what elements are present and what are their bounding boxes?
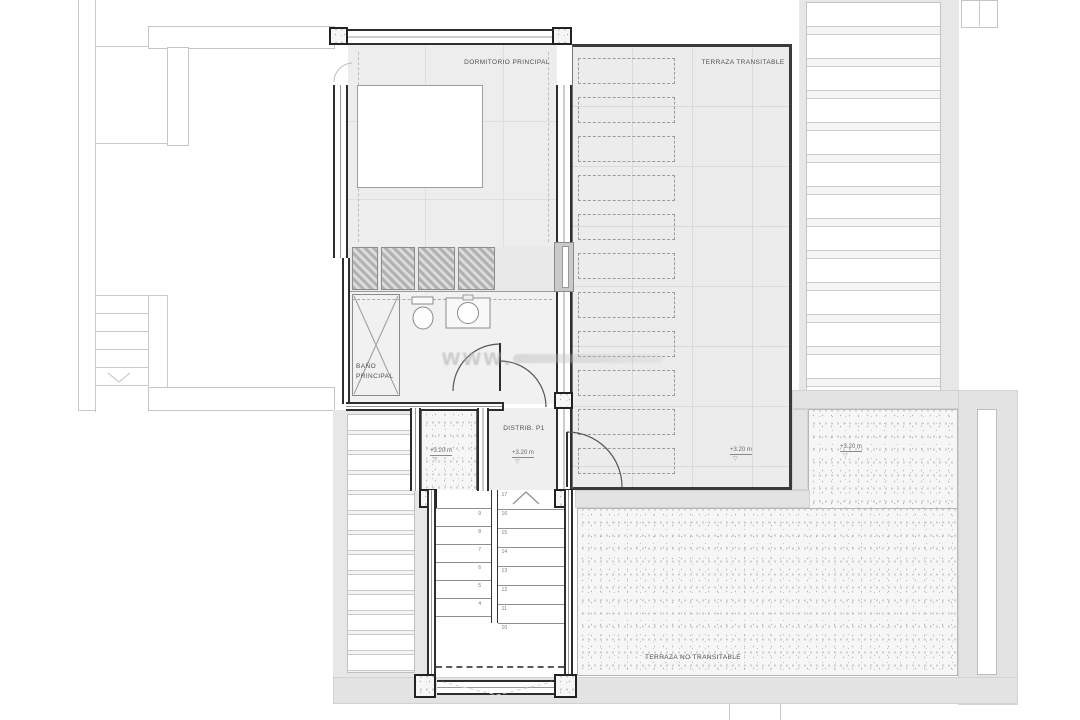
terrace-non-walkable-level-mark: +3.20 m bbox=[840, 444, 862, 452]
terrace-non-walkable-label: TERRAZA NO TRANSITABLE bbox=[645, 653, 741, 663]
terrace-non-walkable-level-triangle: ▽ bbox=[843, 453, 848, 459]
toilet bbox=[413, 307, 433, 329]
stair-direction-arrow bbox=[513, 492, 539, 504]
terrace-door-arc bbox=[567, 432, 622, 487]
terrace-walkable-level-triangle: ▽ bbox=[733, 456, 738, 462]
watermark-text: www. bbox=[442, 344, 513, 370]
sink-basin bbox=[458, 303, 479, 324]
bathroom-label-line1: BAÑO bbox=[356, 363, 376, 370]
lower-stair-arrow bbox=[108, 373, 130, 382]
distributor-label: DISTRIB. P1 bbox=[496, 424, 552, 434]
distributor-level-triangle: ▽ bbox=[515, 459, 520, 465]
watermark: www. bbox=[442, 344, 663, 371]
terrace-walkable-level-mark: +3.20 m bbox=[730, 447, 752, 455]
distributor-level-mark: +3.20 m bbox=[512, 450, 534, 458]
stair-lower-faint-v bbox=[442, 682, 552, 695]
watermark-blur-tail bbox=[513, 354, 663, 363]
terrace-walkable-label: TERRAZA TRANSITABLE bbox=[688, 58, 798, 68]
bathroom-label: BAÑO PRINCIPAL bbox=[356, 362, 393, 382]
sink-tap bbox=[463, 295, 473, 300]
floor-plan: 9876541716151413121110 DORMITORIO bbox=[0, 0, 1080, 720]
shaft-level-triangle: ▽ bbox=[433, 457, 438, 463]
bathroom-label-line2: PRINCIPAL bbox=[356, 373, 393, 380]
shaft-level-mark: +3.20 m bbox=[430, 448, 452, 456]
bedroom-label: DORMITORIO PRINCIPAL bbox=[452, 58, 562, 68]
toilet-cistern bbox=[412, 297, 433, 304]
window-swing-arc bbox=[334, 63, 352, 82]
